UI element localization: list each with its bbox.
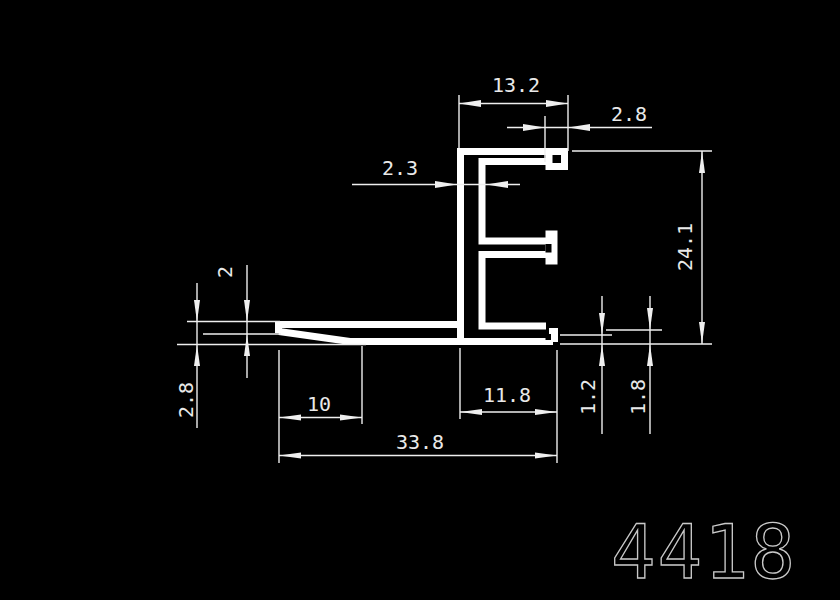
dimension-label: 2.8 [174,382,198,418]
dimension-label: 11.8 [483,383,531,407]
technical-drawing: 13.22.82.324.11.21.81011.833.822.8 4418 [0,0,840,600]
dimension-label: 13.2 [492,73,540,97]
part-number-label: 4418 [611,509,797,595]
dimension-label: 10 [307,392,331,416]
dimension-label: 24.1 [673,223,697,271]
dimension-label: 33.8 [396,430,444,454]
dimension-label: 2.3 [382,156,418,180]
cad-canvas: 13.22.82.324.11.21.81011.833.822.8 4418 [0,0,840,600]
profile-notch [546,244,552,253]
dimension-label: 2.8 [611,102,647,126]
dimension-label: 2 [213,266,237,278]
dimension-label: 1.2 [576,379,600,415]
dimension-label: 1.8 [626,379,650,415]
profile-notch [546,334,552,340]
